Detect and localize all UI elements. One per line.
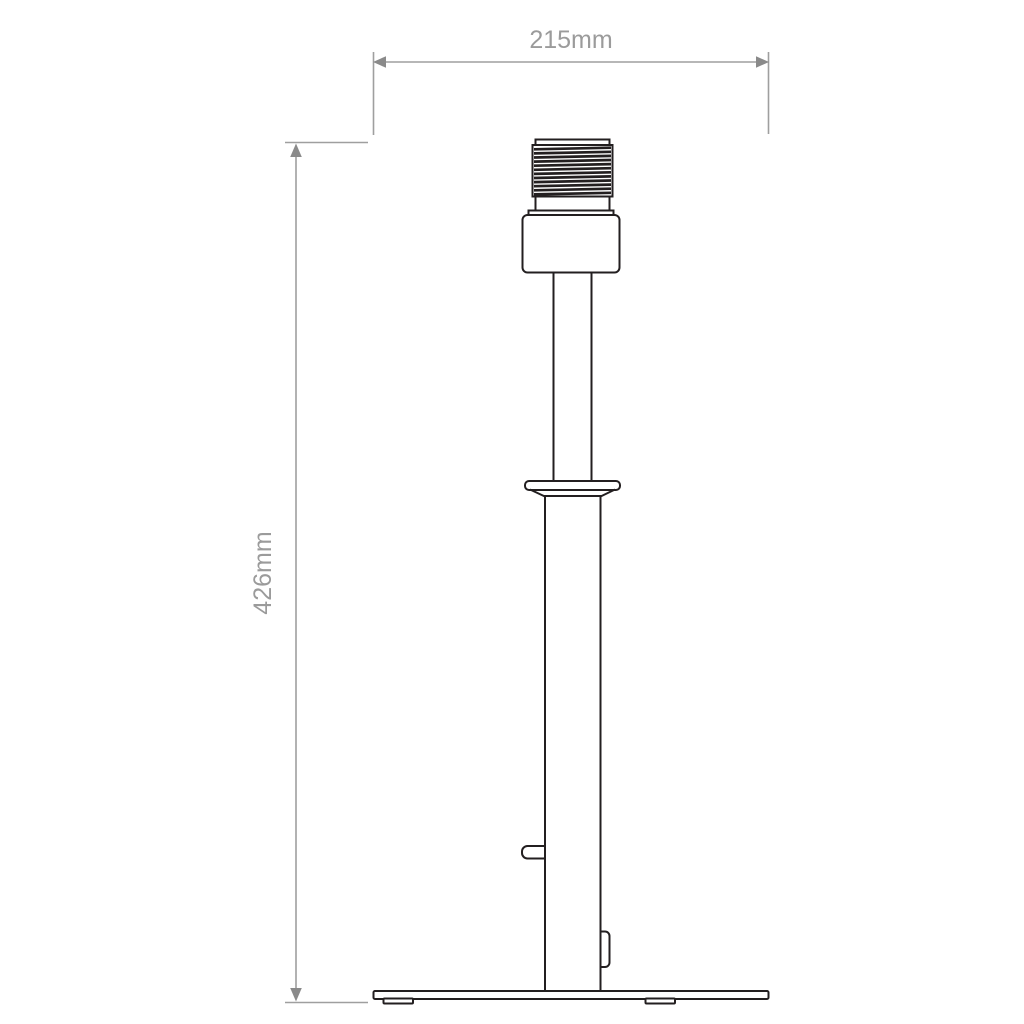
lamp-base-figure bbox=[374, 140, 769, 1004]
arrow-down-icon bbox=[290, 988, 302, 1002]
thread-neck bbox=[536, 197, 610, 212]
height-dimension-label: 426mm bbox=[249, 531, 277, 614]
stem-rod bbox=[554, 273, 592, 482]
arrow-left-icon bbox=[373, 56, 386, 68]
column-tube bbox=[545, 496, 601, 992]
height-dimension: 426mm bbox=[249, 143, 368, 1003]
drawing-canvas: 215mm 426mm bbox=[0, 0, 1024, 1024]
flange bbox=[525, 481, 620, 490]
base-plate bbox=[374, 991, 769, 999]
width-dimension-label: 215mm bbox=[529, 26, 612, 54]
arrow-up-icon bbox=[290, 144, 302, 158]
width-dimension: 215mm bbox=[373, 26, 769, 135]
foot-left bbox=[384, 999, 414, 1004]
foot-right bbox=[646, 999, 676, 1004]
collar bbox=[523, 215, 620, 273]
lamp-base-technical-drawing: 215mm 426mm bbox=[0, 0, 1024, 1024]
arrow-right-icon bbox=[756, 56, 769, 68]
